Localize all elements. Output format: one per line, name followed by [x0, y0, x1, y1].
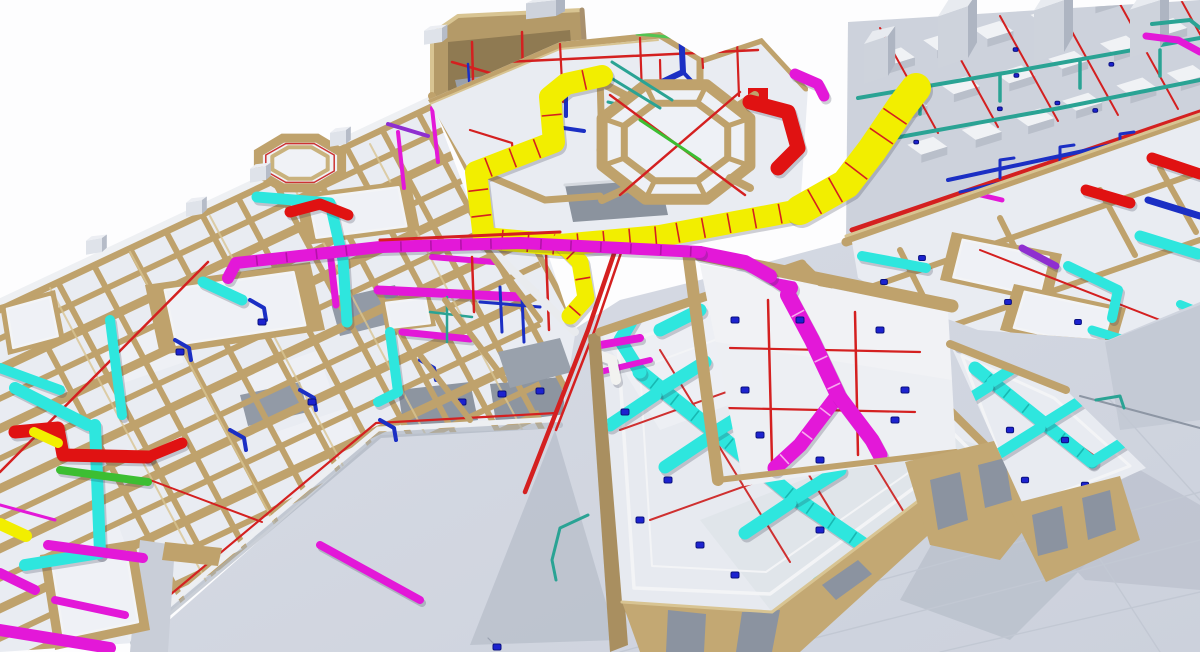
octagon-drum [258, 138, 341, 188]
bim-3d-view [0, 0, 1200, 652]
bim-model-viewport [0, 0, 1200, 652]
